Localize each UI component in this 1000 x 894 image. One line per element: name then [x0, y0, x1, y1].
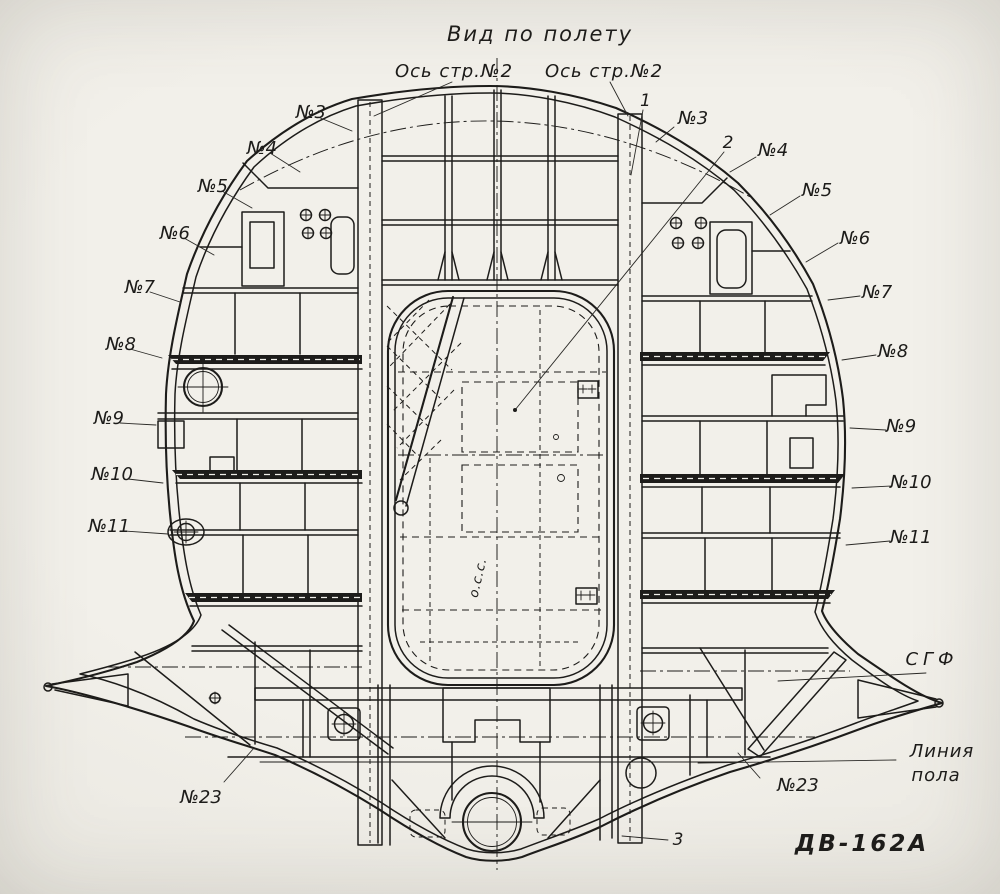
door-frame-hidden	[403, 306, 599, 670]
axis-label-right: Ось стр.№2	[545, 61, 663, 82]
frame-label-23-right: №23	[776, 775, 819, 796]
fuselage-frame-cross-section-drawing: Вид по полету Ось стр.№2 Ось стр.№2 1 2 …	[0, 0, 1000, 894]
door-frame-outer	[388, 291, 614, 685]
frame-label-right-5: №5	[801, 180, 832, 201]
left-tip-bracket	[44, 674, 128, 706]
arch-rib-2	[487, 90, 508, 280]
arch-rib-1	[438, 96, 459, 280]
hidden-lattice	[387, 300, 461, 480]
hidden-panel-upper	[462, 382, 578, 452]
frame-label-left-11: №11	[87, 516, 130, 537]
keel-box	[443, 688, 550, 742]
sgf-label: СГФ	[905, 649, 958, 670]
drawing-number: ДВ-162А	[794, 831, 929, 857]
post-braces	[392, 780, 600, 838]
frame-label-right-4: №4	[757, 140, 788, 161]
frame-label-23-left: №23	[179, 787, 222, 808]
door-jamb-fittings	[576, 381, 598, 604]
skin-clip-right	[790, 438, 813, 468]
notched-box-right	[772, 375, 826, 416]
drawing-title: Вид по полету	[447, 22, 633, 46]
skin-clip-left	[158, 421, 184, 448]
frame-label-right-11: №11	[889, 527, 932, 548]
floor-line-label-2: пола	[911, 765, 960, 786]
arch-rib-3	[541, 96, 562, 280]
flare-brace-hatched	[748, 652, 846, 757]
bolt-group-right	[671, 218, 707, 249]
callout-3: 3	[673, 830, 684, 850]
frame-label-right-9: №9	[885, 416, 916, 437]
frame-label-left-8: №8	[105, 334, 136, 355]
frame-label-right-7: №7	[861, 282, 893, 303]
outer-reference-arc	[240, 121, 752, 198]
frame-label-right-3: №3	[677, 108, 708, 129]
labels: Вид по полету Ось стр.№2 Ось стр.№2 1 2 …	[87, 22, 974, 857]
axis-label-left: Ось стр.№2	[395, 61, 513, 82]
callout-1: 1	[640, 91, 651, 111]
frame-label-right-6: №6	[839, 228, 870, 249]
callout-2: 2	[723, 133, 734, 153]
door-hidden-members	[398, 310, 606, 668]
bolt-group-left	[301, 210, 332, 239]
door-opening	[387, 291, 614, 685]
left-bolted-assembly	[242, 210, 354, 287]
frame-label-left-9: №9	[93, 408, 124, 429]
brace-fitting-ring	[394, 501, 408, 515]
frame-label-left-5: №5	[197, 176, 228, 197]
floor-line-label-1: Линия	[909, 741, 975, 762]
door-frame-mid	[395, 298, 607, 678]
right-side-grid	[640, 178, 845, 653]
hidden-panel-lower	[462, 465, 578, 532]
frame-label-left-6: №6	[159, 223, 190, 244]
frame-label-right-10: №10	[889, 472, 932, 493]
frame-label-left-10: №10	[90, 464, 133, 485]
frame-label-left-3: №3	[295, 102, 326, 123]
right-bolted-assembly	[671, 218, 753, 295]
post-left	[378, 685, 390, 845]
fitting-oval-left	[168, 519, 204, 545]
frame-label-left-7: №7	[124, 277, 156, 298]
frame-label-left-4: №4	[246, 138, 277, 159]
top-arch-grid	[382, 90, 618, 285]
frame-label-right-8: №8	[877, 341, 908, 362]
center-axis-label: о.с.с.	[467, 556, 491, 599]
floor-beam	[255, 688, 742, 700]
door-diagonal-brace	[396, 297, 453, 500]
scanned-technical-drawing-sheet: Вид по полету Ось стр.№2 Ось стр.№2 1 2 …	[0, 0, 1000, 894]
